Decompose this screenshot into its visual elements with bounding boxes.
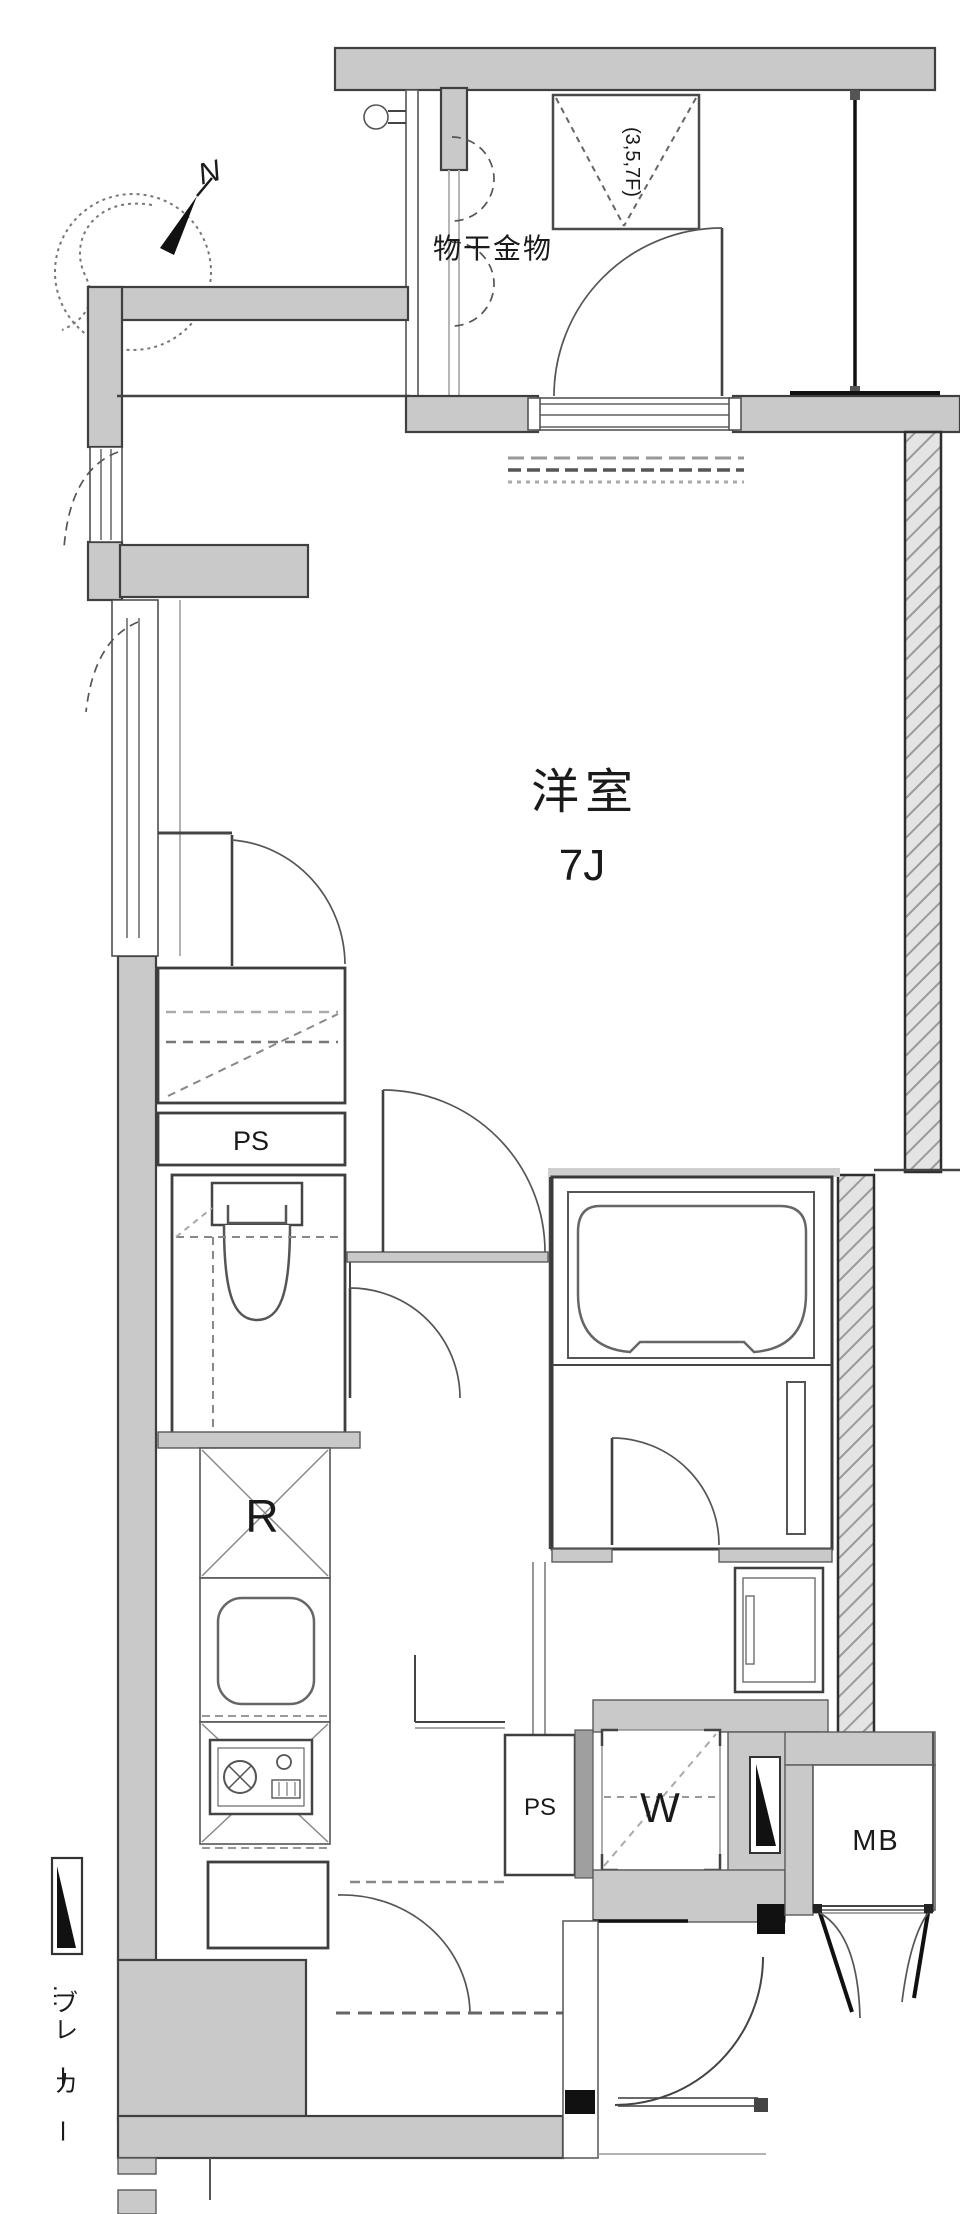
bath-counter [787, 1382, 805, 1534]
floors-note-label: (3,5,7F) [621, 127, 643, 197]
mb-left-wall [785, 1765, 813, 1915]
ps-washer-wall [575, 1730, 593, 1878]
west-wall-upper [88, 287, 122, 447]
balcony-door-arc [554, 228, 722, 396]
utility-bottom-wall [593, 1870, 785, 1922]
east-wall-hatched-upper [905, 432, 941, 1172]
balcony-left-wall [406, 90, 418, 398]
vanity-cabinet [735, 1568, 823, 1692]
bath-south-wall [552, 1549, 612, 1562]
mb-top-wall [785, 1732, 935, 1765]
entrance-side-wall [563, 1921, 598, 2158]
mb-door-post [924, 1904, 933, 1913]
bathtub [578, 1206, 806, 1352]
west-wall-below [118, 2158, 156, 2174]
ps-upper-label: PS [233, 1126, 269, 1156]
mb-door-post [813, 1904, 822, 1913]
north-label: N [195, 154, 225, 192]
kitchen: R [200, 1448, 330, 1948]
north-west-wall [88, 287, 408, 320]
legend: …ブレーカー [48, 1858, 82, 2143]
mb-label: MB [852, 1825, 900, 1857]
west-window-small [90, 447, 122, 542]
toilet-tank [212, 1183, 302, 1225]
legend-breaker-label: …ブレーカー [48, 1984, 78, 2143]
entry-door-arc [615, 1957, 763, 2105]
north-wall-right [733, 396, 960, 432]
south-wall [118, 2116, 563, 2158]
window-frame-cap [528, 398, 540, 430]
floor-plan-page: N 物干金物 (3,5,7F) [0, 0, 960, 2214]
divider-post [850, 90, 860, 100]
room-name-label: 洋室 [531, 766, 639, 819]
room-size-label: 7J [559, 841, 605, 890]
meter-box: MB [785, 1732, 935, 2018]
closet-door-arc [232, 840, 345, 964]
balcony-pillar [441, 88, 467, 170]
stove [210, 1740, 312, 1814]
north-wall-left [406, 396, 538, 432]
windows [64, 398, 744, 956]
hall-door-arc [338, 1895, 470, 2012]
main-room: 洋室 7J [531, 228, 722, 890]
floor-plan-svg: N 物干金物 (3,5,7F) [0, 0, 960, 2214]
west-window-tall [112, 600, 158, 956]
southwest-corner-wall [118, 1960, 306, 2120]
wall-corner-block [757, 1904, 785, 1934]
ps-lower-label: PS [524, 1794, 556, 1821]
room-south-wall [347, 1252, 548, 1262]
refrigerator-label: R [245, 1490, 278, 1542]
washer-label: W [640, 1784, 680, 1831]
sink [218, 1598, 314, 1704]
vanity [735, 1568, 823, 1692]
wall-stub [120, 545, 308, 597]
west-wall-mid [88, 542, 122, 600]
west-wall-below [118, 2190, 156, 2214]
drain-icon [364, 105, 388, 129]
shoe-cabinet [208, 1862, 328, 1948]
bath-south-wall [719, 1549, 832, 1562]
entrance [563, 1921, 768, 2158]
toilet-door-arc [350, 1288, 460, 1398]
east-wall-hatched-lower [838, 1175, 874, 1735]
storage-toilet-zone: PS [158, 833, 460, 1448]
laundry-hardware-label: 物干金物 [433, 233, 553, 264]
door-strike-block [565, 2090, 595, 2114]
room-door-arc [383, 1090, 545, 1252]
balcony: 物干金物 (3,5,7F) [335, 48, 935, 398]
window-frame-cap [729, 398, 741, 430]
entry-door-hinge [754, 2098, 768, 2112]
balcony-railing [335, 48, 935, 90]
hatched-walls [838, 432, 960, 1735]
west-wall-lower [118, 956, 156, 1960]
toilet-kitchen-wall [158, 1432, 360, 1448]
utility-top-wall [593, 1700, 828, 1732]
north-arrow-icon [160, 196, 197, 255]
closet [158, 968, 345, 1103]
toilet-bowl [224, 1225, 290, 1320]
bathroom [548, 1168, 840, 1562]
